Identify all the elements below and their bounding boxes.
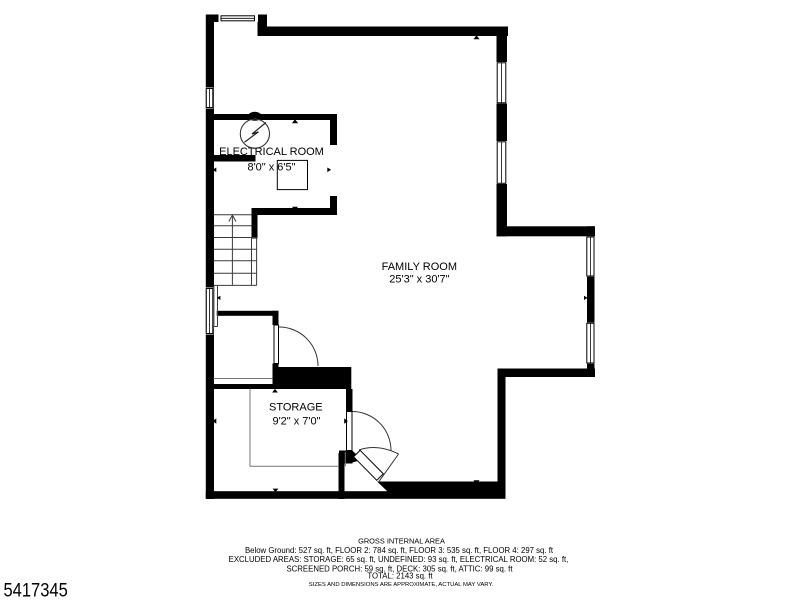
svg-text:FAMILY ROOM: FAMILY ROOM [382,261,457,273]
svg-text:GROSS INTERNAL AREA: GROSS INTERNAL AREA [358,536,445,545]
svg-text:5417345: 5417345 [4,579,68,600]
svg-text:STORAGE: STORAGE [269,401,323,413]
svg-text:ELECTRICAL ROOM: ELECTRICAL ROOM [219,146,324,158]
svg-text:25'3" x 30'7": 25'3" x 30'7" [389,273,449,285]
svg-text:Below Ground: 527 sq. ft, FLOO: Below Ground: 527 sq. ft, FLOOR 2: 784 s… [245,546,554,555]
svg-text:SIZES AND DIMENSIONS ARE APPRO: SIZES AND DIMENSIONS ARE APPROXIMATE, AC… [309,582,494,588]
svg-text:9'2" x 7'0": 9'2" x 7'0" [272,416,320,428]
svg-text:8'0" x 6'5": 8'0" x 6'5" [247,161,295,173]
svg-text:EXCLUDED AREAS: STORAGE: 65 sq: EXCLUDED AREAS: STORAGE: 65 sq. ft, UNDE… [229,555,569,564]
svg-text:TOTAL: 2143 sq. ft: TOTAL: 2143 sq. ft [367,572,433,581]
